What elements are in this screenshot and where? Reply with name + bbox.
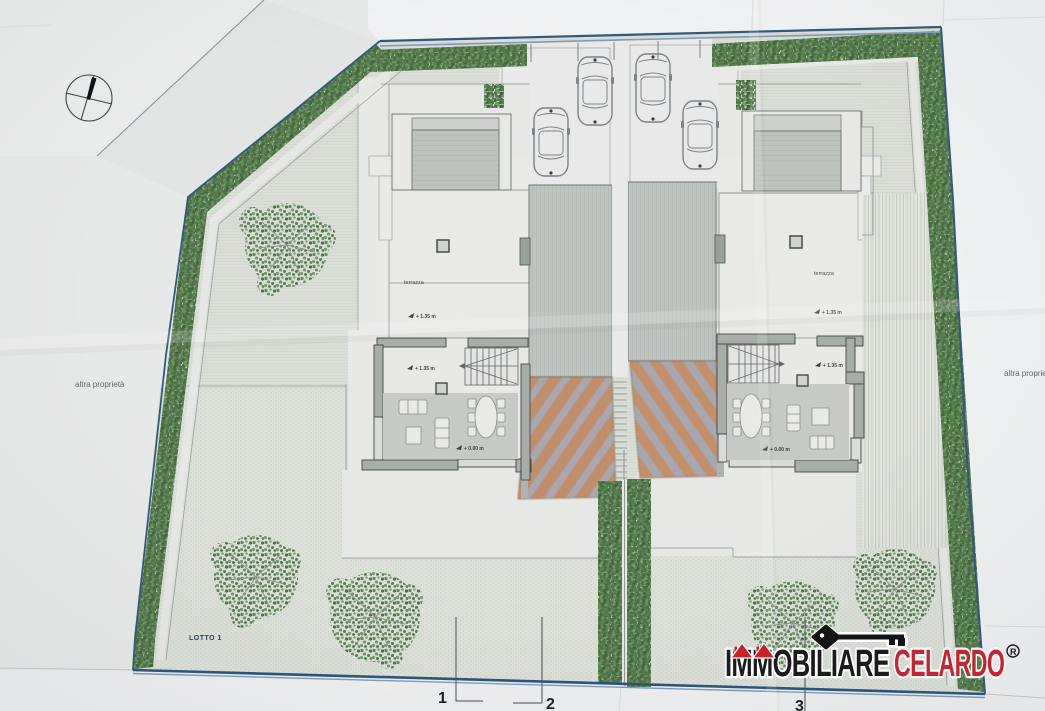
svg-text:CELARDO: CELARDO	[894, 642, 1005, 684]
svg-text:IMMOBILIARE: IMMOBILIARE	[725, 642, 889, 684]
svg-text:R: R	[1010, 647, 1017, 657]
